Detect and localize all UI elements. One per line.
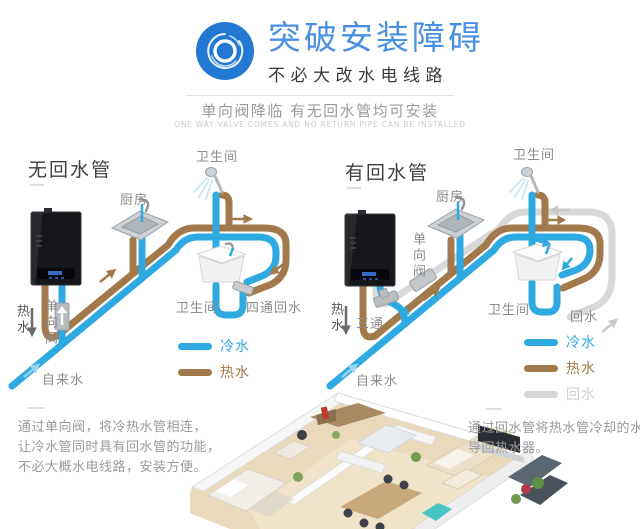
note-left: 通过单向阀，将冷热水管相连， 让冷水管同时具有回水管的功能， 不必大概水电线路，… [18, 418, 221, 478]
label-tap-water: 自来水 [356, 370, 398, 389]
label-hot-water: 热水 [326, 302, 345, 334]
diagram-with-return-pipe: 有回水管 卫生间 厨房 单向阀 三通 热水 自来水 卫生间 回水 冷水 热水 回… [320, 140, 640, 395]
legend-swatch-hot [178, 369, 212, 376]
label-hot-water: 热水 [12, 304, 31, 336]
legend-item-cold: 冷水 [178, 336, 250, 356]
label-bathroom-bottom: 卫生间 [176, 297, 218, 316]
water-heater [31, 208, 81, 285]
apartment-render [190, 391, 568, 529]
legend-swatch-hot [524, 365, 558, 372]
note-left-line-3: 不必大概水电线路，安装方便。 [18, 458, 221, 478]
note-right-line-2: 导回热水器。 [468, 439, 640, 459]
legend-label-hot: 热水 [220, 362, 250, 382]
note-right-line-1: 通过回水管将热水管冷却的水 [468, 419, 640, 439]
note-dash-left [28, 407, 44, 409]
label-three-way: 三通 [356, 313, 384, 332]
note-dash-right [486, 408, 502, 410]
legend-swatch-cold [524, 339, 558, 346]
note-left-line-1: 通过单向阀，将冷热水管相连， [18, 418, 221, 438]
note-right: 通过回水管将热水管冷却的水 导回热水器。 [468, 419, 640, 459]
legend-item-hot: 热水 [524, 358, 596, 378]
label-one-way-valve: 单向阀 [40, 299, 59, 347]
bathroom-basin [197, 244, 246, 283]
header-divider [186, 95, 454, 96]
tagline: 单向阀降临 有无回水管均可安装 [0, 100, 640, 121]
tagline-english: ONE WAY VALVE COMES AND NO RETURN PIPE C… [0, 120, 640, 129]
label-bathroom-top: 卫生间 [513, 144, 555, 163]
label-tap-water: 自来水 [42, 369, 84, 388]
diagram-heading: 有回水管 [345, 158, 429, 185]
water-heater [345, 210, 395, 286]
infographic-page: 突破安装障碍 不必大改水电线路 单向阀降临 有无回水管均可安装 ONE WAY … [0, 0, 640, 529]
label-kitchen: 厨房 [120, 189, 148, 208]
note-left-line-2: 让冷水管同时具有回水管的功能， [18, 438, 221, 458]
concentric-circles-icon [195, 21, 255, 81]
heading-dash [30, 184, 44, 186]
bathroom-basin [513, 242, 562, 281]
legend-swatch-cold [178, 343, 212, 350]
legend-label-cold: 冷水 [566, 332, 596, 352]
legend-item-hot: 热水 [178, 362, 250, 382]
legend-left: 冷水 热水 [178, 336, 250, 388]
label-return-water: 回水 [570, 306, 598, 325]
diagram-no-return-pipe: 无回水管 卫生间 厨房 卫生间 四通回水 热水 单向阀 自来水 冷水 热水 [0, 140, 320, 395]
label-bathroom-top: 卫生间 [196, 146, 238, 165]
label-kitchen: 厨房 [436, 186, 464, 205]
heading-dash [347, 187, 361, 189]
legend-label-cold: 冷水 [220, 336, 250, 356]
page-title: 突破安装障碍 [268, 20, 484, 56]
label-one-way-valve: 单向阀 [408, 232, 427, 280]
diagram-heading: 无回水管 [28, 155, 112, 182]
legend-item-cold: 冷水 [524, 332, 596, 352]
label-bathroom-bottom: 卫生间 [488, 299, 530, 318]
legend-label-return: 回水 [566, 384, 596, 404]
label-four-way-return: 四通回水 [246, 297, 302, 316]
page-subtitle: 不必大改水电线路 [268, 61, 484, 86]
legend-label-hot: 热水 [566, 358, 596, 378]
